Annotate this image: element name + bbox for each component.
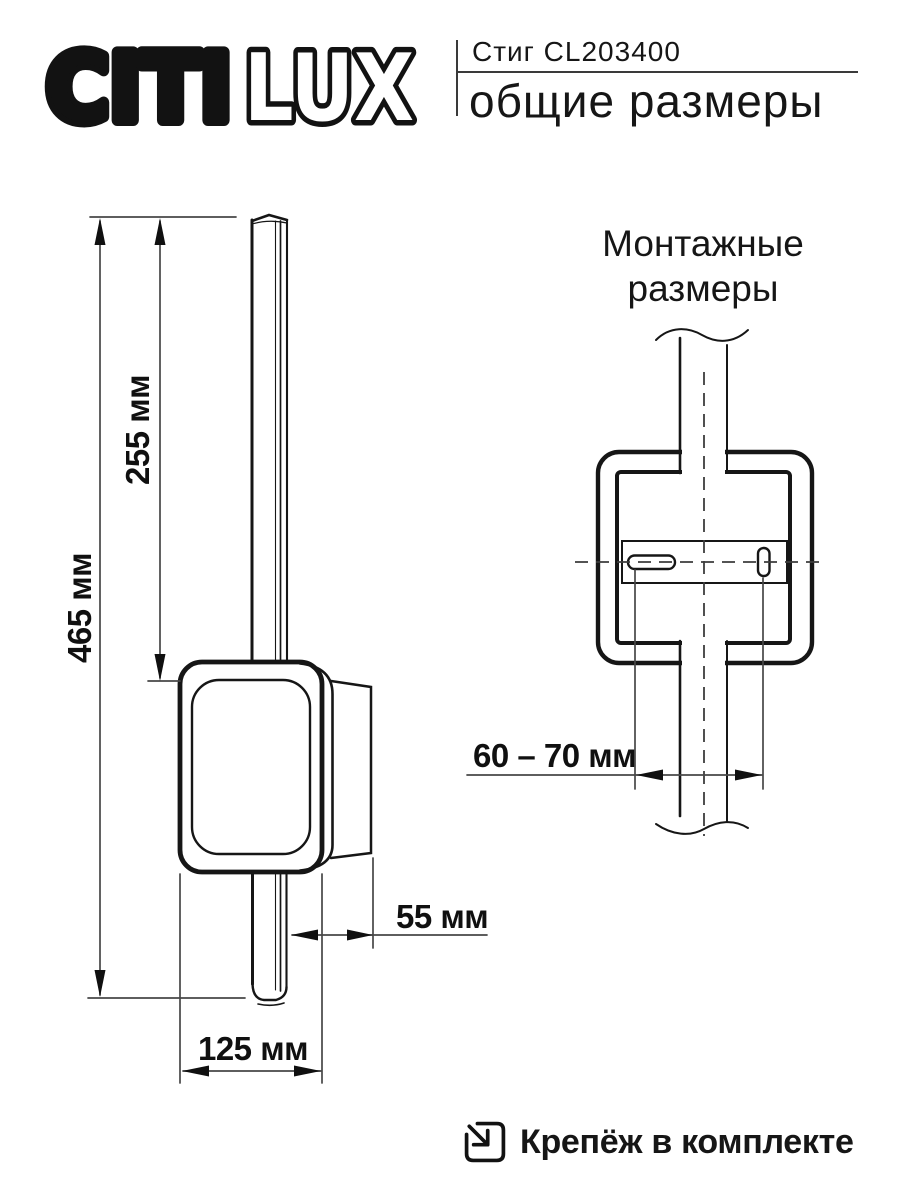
hardware-included-icon xyxy=(459,1116,511,1168)
break-line-bottom xyxy=(656,822,748,834)
dim-label-upper-height: 255 мм xyxy=(119,375,157,485)
dim-label-total-height: 465 мм xyxy=(61,553,99,663)
lamp-body xyxy=(180,662,371,872)
mounting-title-line2: размеры xyxy=(555,266,851,311)
dim-label-width: 125 мм xyxy=(197,1030,309,1068)
general-view-arrows xyxy=(95,218,374,1077)
icon-arrow-shaft xyxy=(469,1126,486,1143)
lamp-body-side-edge xyxy=(300,664,333,871)
dim-label-depth: 55 мм xyxy=(396,898,488,936)
general-view xyxy=(88,215,487,1083)
lamp-body-bezel xyxy=(180,662,322,872)
dim-label-hole-spacing: 60 – 70 мм xyxy=(473,737,636,775)
hardware-included-note: Крепёж в комплекте xyxy=(520,1123,854,1162)
lamp-stem-upper xyxy=(252,215,287,662)
mounting-title-line1: Монтажные xyxy=(555,221,851,266)
technical-drawing xyxy=(0,0,899,1200)
break-line-top xyxy=(656,329,748,341)
mounting-title: Монтажные размеры xyxy=(555,221,851,311)
lamp-diffuser xyxy=(192,680,310,854)
lamp-stem-lower xyxy=(253,872,287,1005)
lamp-body-back-box xyxy=(331,681,371,858)
spec-sheet-page: CITI LUX Стиг CL203400 общие размеры xyxy=(0,0,899,1200)
